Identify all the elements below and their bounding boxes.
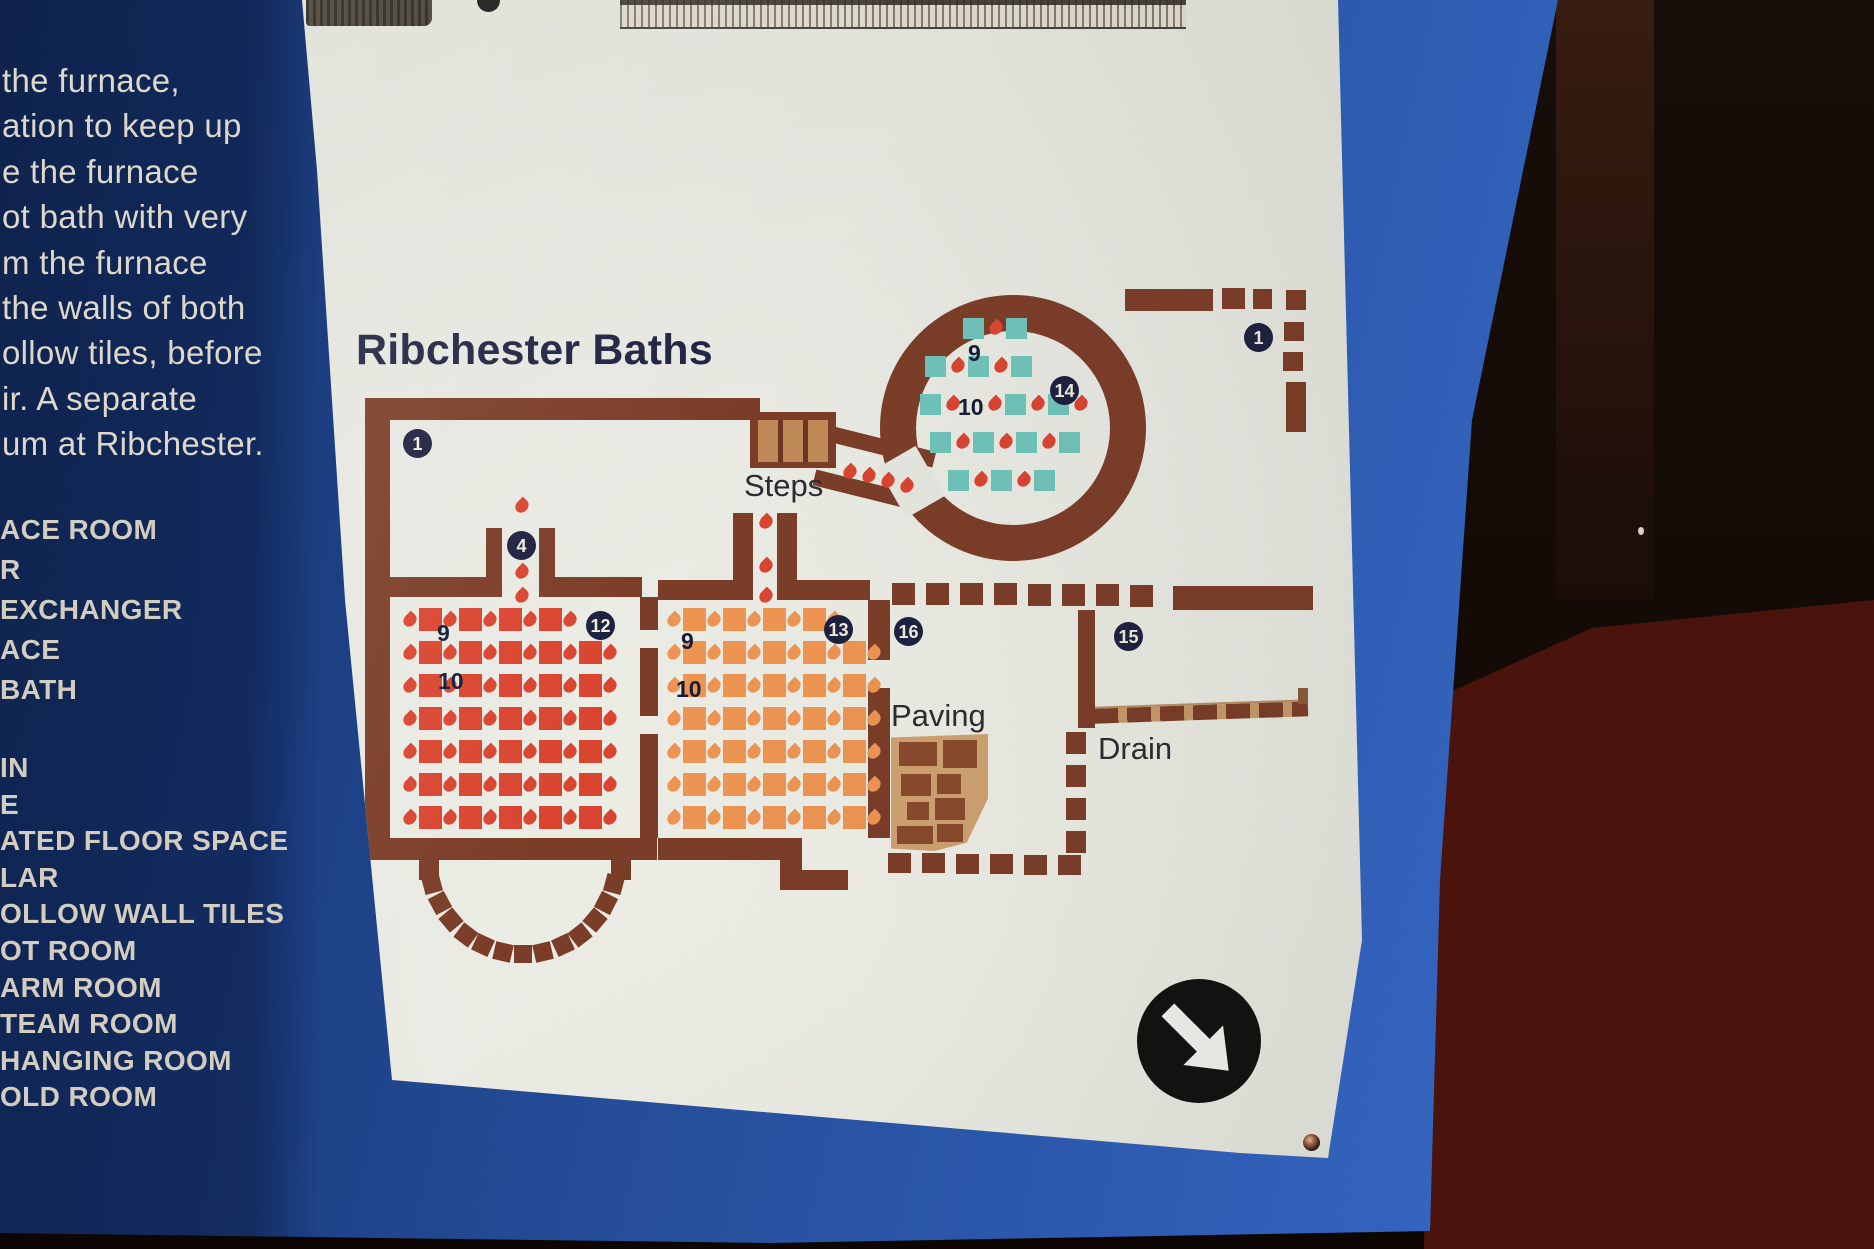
flame-icon	[785, 611, 804, 630]
legend-item: BATH	[0, 674, 77, 706]
pila-square	[763, 707, 786, 730]
pila-square	[803, 740, 826, 763]
wall-dash	[1066, 831, 1086, 853]
wall-segment	[365, 398, 760, 420]
flame-icon	[401, 743, 420, 762]
numbered-badge: 1	[403, 429, 432, 458]
pila-square	[539, 707, 562, 730]
sidebar-paragraph-line: ation to keep up	[2, 107, 242, 145]
pila-square	[763, 641, 786, 664]
pila-square	[459, 773, 482, 796]
legend-item: OLD ROOM	[0, 1081, 157, 1113]
wall-segment	[780, 838, 802, 890]
flame-icon	[513, 497, 532, 516]
wall-segment	[555, 577, 642, 597]
flame-icon	[521, 611, 540, 630]
pila-square	[459, 641, 482, 664]
pila-square	[803, 806, 826, 829]
paving-stone	[907, 802, 929, 820]
wall-dash	[956, 854, 979, 874]
wall-dash	[1222, 288, 1245, 309]
wall-segment	[539, 528, 555, 597]
legend-item: OLLOW WALL TILES	[0, 898, 284, 930]
wall-segment	[640, 648, 658, 716]
pila-square	[499, 707, 522, 730]
steps-separator	[778, 420, 783, 462]
room-number: 10	[438, 670, 464, 693]
photo-scene: the furnace,ation to keep upe the furnac…	[0, 0, 1874, 1249]
flame-icon	[521, 809, 540, 828]
wall-segment	[640, 734, 658, 838]
flame-icon	[561, 611, 580, 630]
flame-icon	[401, 809, 420, 828]
legend-item: HANGING ROOM	[0, 1045, 232, 1077]
paving-stone	[897, 826, 933, 844]
flame-icon	[481, 809, 500, 828]
steps-label: Steps	[744, 468, 823, 504]
wall-dash	[514, 945, 532, 963]
flame-icon	[401, 644, 420, 663]
flame-icon	[601, 644, 620, 663]
wall-dash	[492, 941, 514, 963]
flame-icon	[745, 710, 764, 729]
paving-stone	[935, 798, 965, 820]
teal-tile	[948, 470, 969, 491]
pila-square	[683, 740, 706, 763]
wall-dash	[994, 583, 1017, 605]
flame-icon	[825, 743, 844, 762]
flame-icon	[561, 710, 580, 729]
pila-square	[723, 740, 746, 763]
pila-square	[723, 707, 746, 730]
wall-segment	[1078, 610, 1095, 728]
pila-square	[843, 740, 866, 763]
flame-icon	[705, 710, 724, 729]
flame-icon	[785, 776, 804, 795]
pila-square	[683, 707, 706, 730]
wall-segment	[658, 580, 733, 600]
sidebar-paragraph-line: ot bath with very	[2, 198, 247, 236]
wall-shadow-band	[1556, 0, 1654, 600]
room-number: 10	[958, 396, 984, 419]
drain-label: Drain	[1098, 731, 1172, 767]
teal-tile	[1034, 470, 1055, 491]
pila-square	[803, 674, 826, 697]
flame-icon	[825, 809, 844, 828]
numbered-badge: 1	[1244, 323, 1273, 352]
teal-tile	[925, 356, 946, 377]
flame-icon	[705, 644, 724, 663]
legend-item: TEAM ROOM	[0, 1008, 178, 1040]
flame-icon	[561, 644, 580, 663]
flame-icon	[441, 776, 460, 795]
pila-square	[499, 674, 522, 697]
pila-square	[803, 773, 826, 796]
pila-square	[419, 707, 442, 730]
flame-icon	[401, 710, 420, 729]
flame-icon	[441, 743, 460, 762]
flame-icon	[705, 743, 724, 762]
teal-tile	[920, 394, 941, 415]
legend-item: ATED FLOOR SPACE	[0, 825, 288, 857]
pila-square	[579, 773, 602, 796]
pila-square	[539, 773, 562, 796]
pila-square	[843, 806, 866, 829]
sidebar-paragraph-line: the walls of both	[2, 289, 246, 327]
pila-square	[843, 773, 866, 796]
paving-label: Paving	[891, 698, 986, 734]
flame-icon	[745, 611, 764, 630]
wall-dash	[926, 583, 949, 605]
pila-square	[539, 806, 562, 829]
highlight-speck	[1638, 527, 1644, 535]
pila-square	[579, 707, 602, 730]
wall-dash	[922, 853, 945, 873]
flame-icon	[745, 809, 764, 828]
flame-icon	[665, 710, 684, 729]
flame-icon	[601, 710, 620, 729]
paving-stone	[937, 824, 963, 842]
teal-tile	[1016, 432, 1037, 453]
legend-item: OT ROOM	[0, 935, 137, 967]
wall-dash	[990, 854, 1013, 874]
map-title: Ribchester Baths	[356, 326, 713, 375]
room-number: 9	[437, 622, 450, 645]
flame-icon	[401, 776, 420, 795]
flame-icon	[441, 809, 460, 828]
flame-icon	[757, 587, 776, 606]
paving-stone	[943, 740, 977, 768]
legend-item: LAR	[0, 862, 59, 894]
paving-area	[891, 734, 988, 851]
steps-treads	[758, 420, 828, 462]
flame-icon	[745, 677, 764, 696]
pila-square	[539, 674, 562, 697]
flame-icon	[705, 677, 724, 696]
flame-icon	[561, 743, 580, 762]
legend-item: IN	[0, 752, 29, 784]
pila-square	[539, 740, 562, 763]
wall-dash	[532, 941, 554, 963]
wall-dash	[603, 873, 625, 895]
teal-tile	[991, 470, 1012, 491]
flame-icon	[665, 776, 684, 795]
wall-segment	[365, 838, 657, 860]
wall-segment	[390, 577, 488, 597]
wall-dash	[960, 583, 983, 605]
flame-icon	[561, 776, 580, 795]
pila-square	[419, 773, 442, 796]
paving-stone	[901, 774, 931, 796]
pila-square	[723, 608, 746, 631]
room-number: 9	[968, 342, 981, 365]
pila-square	[499, 641, 522, 664]
pila-square	[763, 773, 786, 796]
pila-square	[843, 674, 866, 697]
wall-dash	[1286, 290, 1306, 310]
flame-icon	[521, 743, 540, 762]
flame-icon	[785, 677, 804, 696]
paving-stone	[899, 742, 937, 766]
wall-dash	[1283, 352, 1303, 371]
flame-icon	[825, 677, 844, 696]
flame-icon	[785, 809, 804, 828]
pila-square	[539, 641, 562, 664]
flame-icon	[481, 743, 500, 762]
flame-icon	[757, 513, 776, 532]
wall-dash	[1066, 732, 1086, 754]
flame-icon	[745, 743, 764, 762]
wall-dash	[1253, 289, 1272, 309]
pila-square	[803, 707, 826, 730]
wall-segment	[802, 870, 848, 890]
pila-square	[803, 641, 826, 664]
wall-dash	[892, 583, 915, 605]
teal-tile	[1011, 356, 1032, 377]
wall-segment	[1286, 382, 1306, 432]
wall-dash	[1096, 584, 1119, 606]
pila-square	[723, 806, 746, 829]
flame-icon	[705, 776, 724, 795]
flame-icon	[745, 644, 764, 663]
wall-dash	[1058, 855, 1081, 875]
wall-dash	[1066, 765, 1086, 787]
teal-tile	[963, 318, 984, 339]
pila-square	[843, 707, 866, 730]
flame-icon	[785, 710, 804, 729]
numbered-badge: 13	[824, 615, 853, 644]
flame-icon	[601, 776, 620, 795]
flame-icon	[825, 710, 844, 729]
flame-icon	[481, 776, 500, 795]
pila-square	[763, 674, 786, 697]
wall-dash	[1066, 798, 1086, 820]
flame-icon	[601, 809, 620, 828]
pila-square	[579, 641, 602, 664]
pila-square	[723, 773, 746, 796]
pila-square	[499, 806, 522, 829]
flame-icon	[441, 710, 460, 729]
flame-icon	[665, 611, 684, 630]
flame-icon	[561, 809, 580, 828]
flame-icon	[481, 644, 500, 663]
wall-segment	[658, 838, 780, 860]
flame-icon	[601, 743, 620, 762]
wall-segment	[777, 513, 797, 600]
legend-item: ACE	[0, 634, 60, 666]
flame-icon	[513, 563, 532, 582]
pila-square	[763, 608, 786, 631]
pila-square	[683, 806, 706, 829]
legend-item: ACE ROOM	[0, 514, 157, 546]
pila-square	[683, 773, 706, 796]
pila-square	[579, 806, 602, 829]
flame-icon	[665, 743, 684, 762]
steps-structure	[750, 412, 836, 468]
teal-tile	[1005, 394, 1026, 415]
flame-icon	[601, 677, 620, 696]
flame-icon	[825, 776, 844, 795]
teal-tile	[930, 432, 951, 453]
room-number: 10	[676, 678, 702, 701]
pila-square	[419, 806, 442, 829]
flame-icon	[785, 743, 804, 762]
panel-screw	[1303, 1134, 1320, 1151]
flame-icon	[521, 776, 540, 795]
flame-icon	[785, 644, 804, 663]
flame-icon	[513, 587, 532, 606]
flame-icon	[825, 644, 844, 663]
wall-segment	[486, 528, 502, 597]
numbered-badge: 14	[1050, 376, 1079, 405]
numbered-badge: 4	[507, 531, 536, 560]
flame-icon	[521, 644, 540, 663]
sidebar-paragraph-line: m the furnace	[2, 244, 208, 282]
pila-square	[763, 806, 786, 829]
pila-square	[723, 641, 746, 664]
pila-square	[459, 806, 482, 829]
wall-dash	[1024, 855, 1047, 875]
legend-item: ARM ROOM	[0, 972, 162, 1004]
pila-square	[579, 740, 602, 763]
wall-dash	[1130, 585, 1153, 607]
numbered-badge: 12	[586, 611, 615, 640]
wall-dash	[1062, 584, 1085, 606]
sidebar-paragraph-line: the furnace,	[2, 62, 180, 100]
flame-icon	[521, 677, 540, 696]
flame-icon	[401, 677, 420, 696]
teal-tile	[1006, 318, 1027, 339]
wall-segment	[365, 398, 390, 860]
flame-icon	[745, 776, 764, 795]
flame-icon	[705, 611, 724, 630]
flame-icon	[705, 809, 724, 828]
flame-icon	[665, 809, 684, 828]
wall-segment	[797, 580, 870, 600]
pila-square	[579, 674, 602, 697]
pila-square	[723, 674, 746, 697]
pila-square	[499, 773, 522, 796]
wall-dash	[1028, 584, 1051, 606]
room-number: 9	[681, 630, 694, 653]
pila-square	[499, 608, 522, 631]
pila-square	[419, 740, 442, 763]
sidebar-text-column: the furnace,ation to keep upe the furnac…	[0, 0, 310, 1249]
flame-icon	[401, 611, 420, 630]
wall-segment	[640, 597, 658, 630]
drain-end-tick	[1298, 688, 1308, 704]
wall-segment	[733, 513, 753, 600]
sidebar-paragraph-line: ollow tiles, before	[2, 334, 263, 372]
pila-square	[803, 608, 826, 631]
flame-icon	[441, 644, 460, 663]
pila-square	[539, 608, 562, 631]
paving-stone	[937, 774, 961, 794]
flame-icon	[561, 677, 580, 696]
sidebar-paragraph-line: ir. A separate	[2, 380, 197, 418]
direction-arrow-icon	[1135, 977, 1263, 1105]
numbered-badge: 16	[894, 617, 923, 646]
steps-separator	[803, 420, 808, 462]
flame-icon	[481, 677, 500, 696]
sidebar-paragraph-line: e the furnace	[2, 153, 199, 191]
teal-tile	[1059, 432, 1080, 453]
pila-square	[459, 608, 482, 631]
wall-dash	[888, 853, 911, 873]
pila-square	[459, 740, 482, 763]
pila-square	[499, 740, 522, 763]
pila-square	[843, 641, 866, 664]
wall-segment	[1125, 289, 1213, 311]
legend-item: R	[0, 554, 21, 586]
pila-square	[459, 707, 482, 730]
numbered-badge: 15	[1114, 622, 1143, 651]
sidebar-paragraph-line: um at Ribchester.	[2, 425, 264, 463]
pila-square	[763, 740, 786, 763]
flame-icon	[757, 557, 776, 576]
wall-dash	[1284, 322, 1304, 341]
flame-icon	[521, 710, 540, 729]
legend-item: E	[0, 789, 19, 821]
legend-item: EXCHANGER	[0, 594, 183, 626]
teal-tile	[973, 432, 994, 453]
wall-segment	[1173, 586, 1313, 610]
flame-icon	[481, 611, 500, 630]
flame-icon	[481, 710, 500, 729]
drain-channel	[1094, 699, 1308, 723]
